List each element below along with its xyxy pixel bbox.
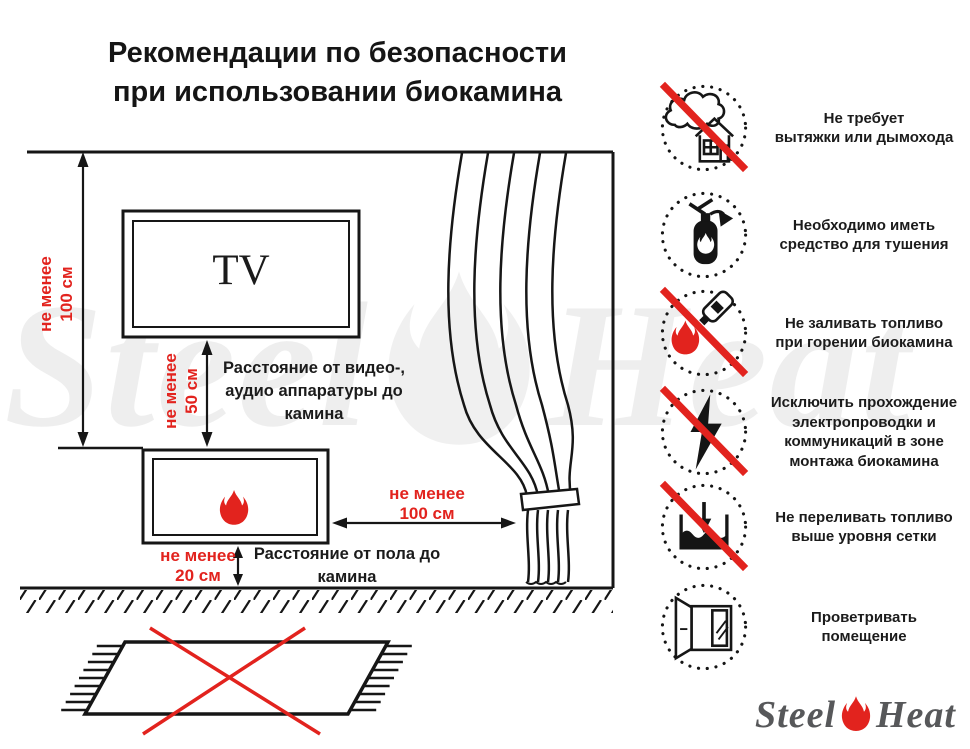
safety-text: Не требует вытяжки или дымохода xyxy=(756,109,970,148)
no-wiring-icon xyxy=(652,380,756,484)
arrow-wall-100cm xyxy=(78,152,89,447)
note-av-equipment: Расстояние от видео-, аудио аппаратуры д… xyxy=(205,357,423,426)
no-chimney-icon xyxy=(652,76,756,180)
safety-item-no-refueling: Не заливать топливо при горении биокамин… xyxy=(652,281,970,385)
extinguisher-icon xyxy=(652,183,756,287)
ventilate-icon xyxy=(652,575,756,679)
steelheat-logo: Steel Heat xyxy=(748,688,963,742)
dimension-label-tv: не менее 50 см xyxy=(160,331,204,451)
tv-label: TV xyxy=(191,247,291,295)
safety-text: Не переливать топливо выше уровня сетки xyxy=(756,508,970,547)
rug-crossed xyxy=(61,628,412,734)
safety-text: Необходимо иметь средство для тушения xyxy=(756,216,970,255)
bio-fireplace-safety-infographic: Steel Heat Рекомендации по безопасности … xyxy=(0,0,970,749)
curtain-tie xyxy=(521,489,579,510)
fire-extinguisher xyxy=(689,200,733,264)
fireplace xyxy=(143,450,328,543)
safety-item-extinguisher: Необходимо иметь средство для тушения xyxy=(652,183,970,287)
safety-item-no-chimney: Не требует вытяжки или дымохода xyxy=(652,76,970,180)
dimension-label-curtain: не менее 100 см xyxy=(362,484,492,524)
safety-item-no-wiring: Исключить прохождение электропроводки и … xyxy=(652,380,970,484)
fuel-bottle xyxy=(696,290,735,329)
safety-item-ventilate: Проветривать помещение xyxy=(652,575,970,679)
dimension-label-wall: не менее 100 см xyxy=(35,226,79,362)
logo-steel: Steel xyxy=(755,693,836,737)
safety-text: Исключить прохождение электропроводки и … xyxy=(756,393,970,471)
page-title: Рекомендации по безопасности при использ… xyxy=(55,34,620,112)
safety-item-no-overfilling: Не переливать топливо выше уровня сетки xyxy=(652,475,970,579)
safety-text: Проветривать помещение xyxy=(756,608,970,647)
floor-hatching xyxy=(20,590,613,613)
note-floor-distance: Расстояние от пола до камина xyxy=(237,543,457,589)
safety-text: Не заливать топливо при горении биокамин… xyxy=(756,314,970,353)
no-overfilling-icon xyxy=(652,475,756,579)
open-window xyxy=(676,598,731,658)
logo-heat: Heat xyxy=(876,693,956,737)
logo-flame-icon xyxy=(841,696,871,734)
no-refueling-icon xyxy=(652,281,756,385)
